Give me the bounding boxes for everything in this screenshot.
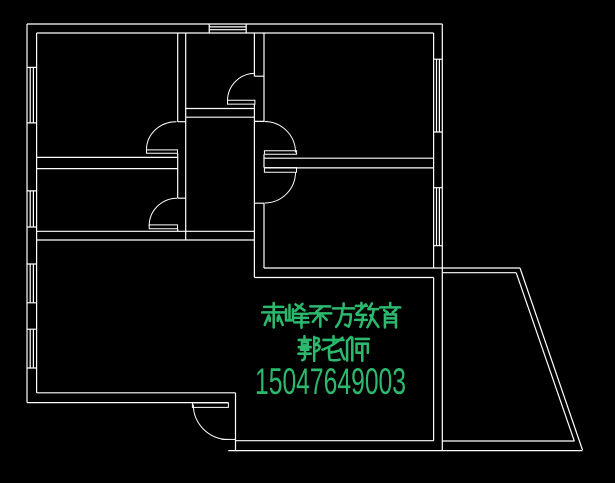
svg-text:15047649003: 15047649003 xyxy=(255,360,406,402)
